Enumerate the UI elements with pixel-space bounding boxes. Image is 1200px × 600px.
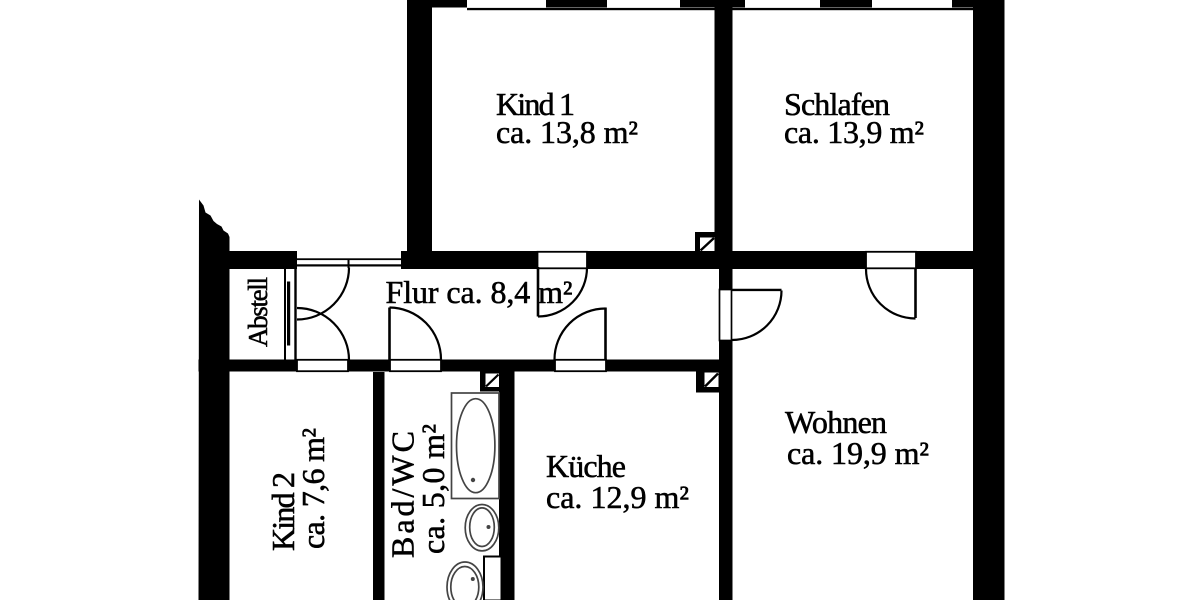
svg-text:ca. 7,6 m²: ca. 7,6 m² [295,428,331,549]
svg-text:ca. 5,0 m²: ca. 5,0 m² [415,424,451,554]
svg-text:ca. 13,9 m²: ca. 13,9 m² [784,114,924,150]
svg-text:ca. 13,8 m²: ca. 13,8 m² [496,114,638,150]
svg-text:ca. 12,9 m²: ca. 12,9 m² [546,479,689,515]
svg-text:Abstell: Abstell [243,277,273,347]
svg-text:ca. 19,9 m²: ca. 19,9 m² [787,435,929,471]
svg-text:Flur ca. 8,4 m²: Flur ca. 8,4 m² [386,274,573,310]
